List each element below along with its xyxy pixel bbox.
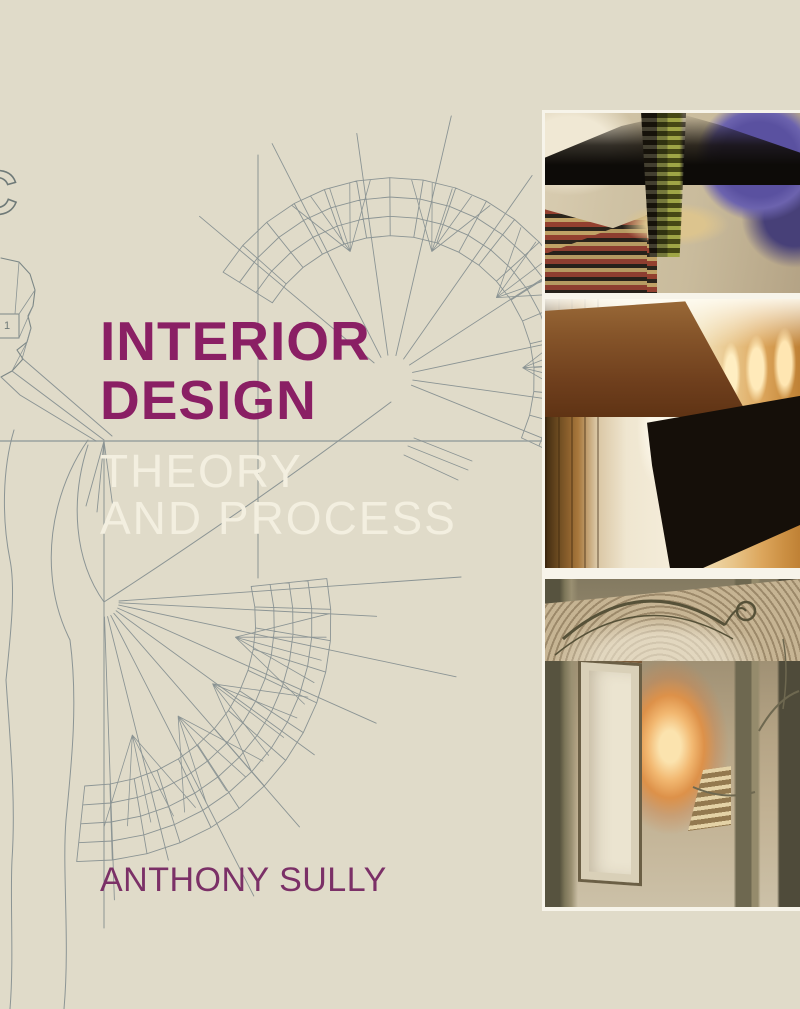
figure-eye-label: 1 xyxy=(4,320,10,332)
book-subtitle: THEORY AND PROCESS xyxy=(100,448,457,542)
book-cover: C 1 INTERIOR DESIGN THEORY AND PROCESS A… xyxy=(0,0,800,1009)
cover-photo-corridor-interior xyxy=(545,299,800,568)
book-title: INTERIOR DESIGN xyxy=(100,312,371,430)
edge-letter-c: C xyxy=(0,158,18,229)
book-title-line2: DESIGN xyxy=(100,371,371,430)
photo-strip xyxy=(542,110,800,911)
cover-photo-staircase-interior xyxy=(545,579,800,907)
photo-staircase-ironwork xyxy=(545,579,800,907)
book-title-line1: INTERIOR xyxy=(100,312,371,371)
book-subtitle-line2: AND PROCESS xyxy=(100,495,457,542)
book-subtitle-line1: THEORY xyxy=(100,448,457,495)
author-name: ANTHONY SULLY xyxy=(100,861,387,900)
cover-photo-theatre-interior xyxy=(545,113,800,293)
